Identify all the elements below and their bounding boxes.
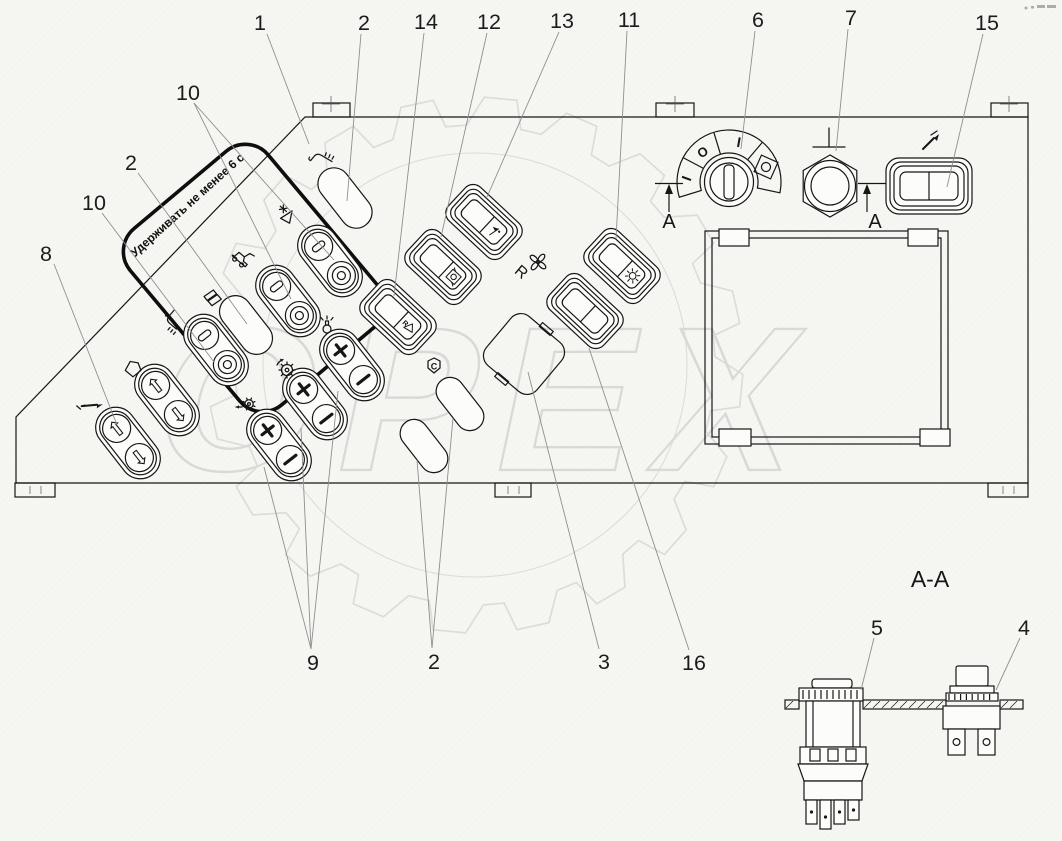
dial-position-2: O <box>694 143 711 161</box>
top-tab <box>991 103 1028 117</box>
callout-8: 8 <box>40 242 52 266</box>
section-view-title: A-A <box>911 566 950 592</box>
callout-4: 4 <box>1018 616 1030 640</box>
grease-gun-icon <box>923 131 939 149</box>
top-tab <box>313 103 350 117</box>
blank-oval-1 <box>311 161 378 234</box>
bottom-foot <box>15 483 55 497</box>
aperture-ear <box>920 429 950 446</box>
callout-16: 16 <box>682 651 706 675</box>
component-5-section <box>798 679 868 829</box>
callout-10-upper: 10 <box>176 81 200 105</box>
corner-artifact <box>1025 5 1057 10</box>
svg-text:C: C <box>431 362 438 372</box>
aperture-ear <box>719 429 751 446</box>
callout-13: 13 <box>550 9 574 33</box>
callout-11: 11 <box>618 8 640 32</box>
rotary-knob-slot <box>724 165 734 199</box>
callout-10-lower: 10 <box>82 191 106 215</box>
section-view-a-a: A-A <box>785 566 1023 829</box>
tab-center-marks <box>322 96 1018 112</box>
callout-9: 9 <box>307 651 319 675</box>
ground-stud <box>803 128 857 217</box>
bottom-foot <box>988 483 1028 497</box>
callout-5: 5 <box>871 616 883 640</box>
ground-icon <box>813 128 845 147</box>
section-letter-left: A <box>662 211 676 233</box>
callout-7: 7 <box>845 6 857 30</box>
rotary-switch: I O I <box>677 130 781 206</box>
callout-1: 1 <box>254 11 266 35</box>
callout-2-bottom: 2 <box>428 650 440 674</box>
control-panel-diagram: ОРЕХ Удерживать не менее 6 с <box>0 0 1062 841</box>
callout-6: 6 <box>752 8 764 32</box>
callout-2-left: 2 <box>125 151 137 175</box>
aperture-ear <box>719 229 749 246</box>
callout-12: 12 <box>477 10 501 34</box>
switch-15 <box>886 158 972 214</box>
component-4-section <box>943 666 1000 755</box>
callout-3: 3 <box>598 650 610 674</box>
callout-14: 14 <box>414 10 438 34</box>
diagram-page: ОРЕХ Удерживать не менее 6 с <box>0 0 1062 841</box>
aperture-ear <box>908 229 938 246</box>
section-letter-right: A <box>868 211 882 233</box>
callout-15: 15 <box>975 11 999 35</box>
callout-2-top: 2 <box>358 11 370 35</box>
lubrication-icon <box>77 392 103 418</box>
dial-position-1: I <box>678 174 694 183</box>
fan-switch-label: R <box>511 262 531 282</box>
hold-note: Удерживать не менее 6 с <box>128 150 248 260</box>
